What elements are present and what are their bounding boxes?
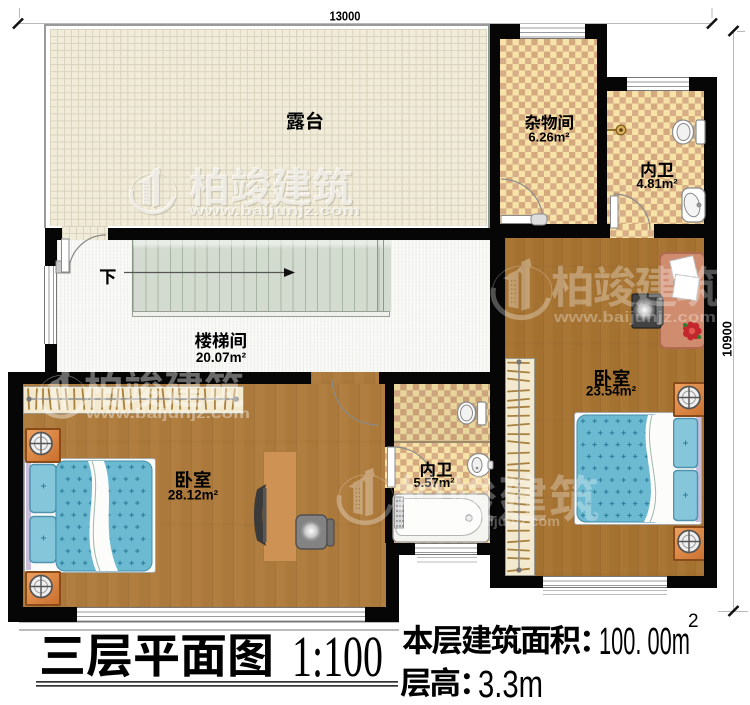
- svg-text:20.07m²: 20.07m²: [196, 350, 247, 365]
- svg-text:2: 2: [688, 611, 699, 632]
- svg-text:4.81m²: 4.81m²: [636, 176, 678, 191]
- svg-text:28.12m²: 28.12m²: [168, 488, 219, 503]
- svg-text:100. 00m: 100. 00m: [599, 621, 690, 663]
- svg-text:www.baijunjz.com: www.baijunjz.com: [553, 310, 716, 326]
- svg-text:3.3m: 3.3m: [478, 664, 543, 705]
- svg-text:10900: 10900: [721, 321, 735, 357]
- svg-text:13000: 13000: [330, 10, 361, 24]
- svg-text:6.26m²: 6.26m²: [528, 130, 570, 145]
- svg-text:www.baijunjz.com: www.baijunjz.com: [188, 202, 360, 218]
- svg-text:1:100: 1:100: [292, 624, 383, 689]
- svg-text:23.54m²: 23.54m²: [586, 384, 637, 399]
- svg-text:www.baijunjz.com: www.baijunjz.com: [435, 513, 560, 529]
- svg-text:www.baijunjz.com: www.baijunjz.com: [85, 406, 250, 421]
